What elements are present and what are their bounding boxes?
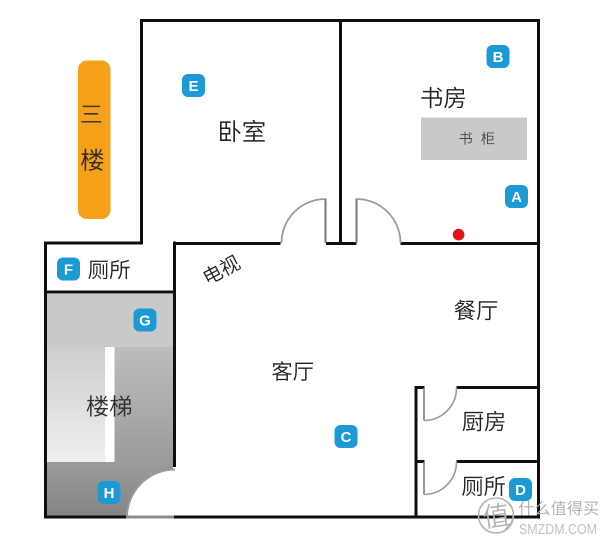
svg-text:E: E: [188, 78, 198, 95]
svg-text:C: C: [341, 429, 352, 446]
svg-text:G: G: [139, 312, 151, 329]
svg-text:A: A: [511, 189, 522, 206]
svg-text:F: F: [64, 261, 73, 278]
svg-text:H: H: [104, 485, 115, 502]
svg-text:SMZDM.COM: SMZDM.COM: [519, 521, 597, 538]
svg-text:D: D: [515, 482, 526, 499]
svg-text:B: B: [493, 49, 504, 66]
